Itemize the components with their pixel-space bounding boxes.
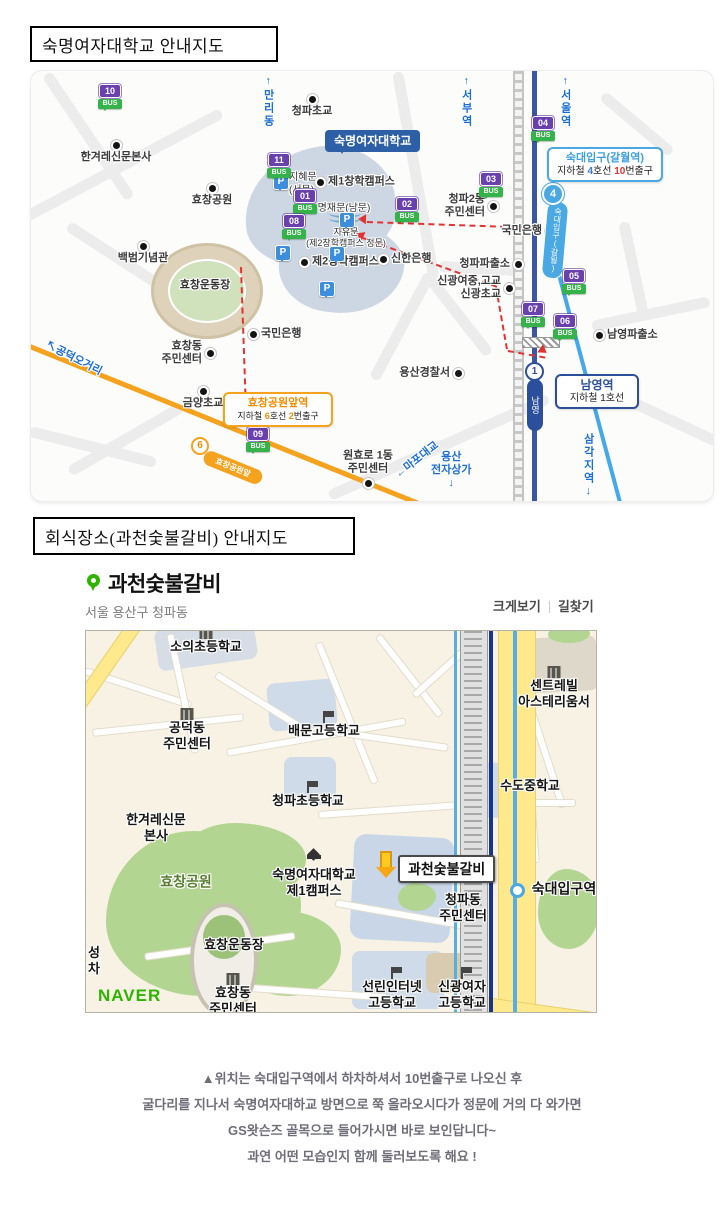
bus-stop-marker: 01BUS bbox=[293, 189, 317, 214]
poi-label: 효창공원 bbox=[192, 194, 232, 207]
bus-icon: BUS bbox=[293, 204, 317, 214]
map2-title: 회식장소(과천숯불갈비) 안내지도 bbox=[45, 524, 288, 549]
poi-label: 청파파출소 bbox=[459, 257, 510, 270]
bus-stop-marker: 06BUS bbox=[553, 314, 577, 339]
university-callout: 숙명여자대학교 bbox=[325, 130, 420, 152]
map2-poi-label: 효창운동장 bbox=[204, 937, 264, 953]
hyochang-callout-line: 지하철 6호선 2번출구 bbox=[230, 410, 326, 423]
map2-poi-label: 소의초등학교 bbox=[170, 639, 242, 655]
bus-number-badge: 10 bbox=[99, 84, 121, 98]
poi-dot bbox=[455, 370, 462, 377]
namyeong-callout-line: 지하철 1호선 bbox=[562, 392, 632, 405]
poi-dot bbox=[380, 256, 387, 263]
parking-icon: P bbox=[339, 212, 355, 228]
sukdae-station-dot bbox=[510, 883, 525, 898]
map2-poi-label: 청파동 주민센터 bbox=[439, 892, 487, 925]
directions-text: ▲위치는 숙대입구역에서 하차하셔서 10번출구로 나오신 후 굴다리를 지나서… bbox=[0, 1066, 724, 1170]
bus-stop-marker: 11BUS bbox=[267, 153, 291, 178]
flag-icon bbox=[461, 967, 463, 979]
building-icon bbox=[181, 708, 194, 720]
map2-poi-label: 공덕동 주민센터 bbox=[163, 720, 211, 753]
map-links: 크게보기 길찾기 bbox=[493, 600, 594, 613]
railway-ties bbox=[464, 631, 482, 1012]
university-guide-map: 숙명여자대학교 4 숙대입구(갈월) 숙대입구(갈월역) 지하철 4호선 10번… bbox=[30, 70, 714, 502]
map1-title: 숙명여자대학교 안내지도 bbox=[42, 32, 224, 57]
poi-label: 신광여중,고교 신광초교 bbox=[437, 275, 501, 301]
poi-label: 효창동 주민센터 bbox=[162, 340, 202, 366]
railway-track bbox=[513, 71, 524, 501]
poi-label: 백범기념관 bbox=[118, 252, 169, 265]
line1-number-badge: 1 bbox=[525, 362, 544, 381]
bus-number-badge: 07 bbox=[522, 302, 544, 316]
restaurant-map-label: 과천숯불갈비 bbox=[398, 855, 495, 883]
directions-line: 굴다리를 지나서 숙명여자대하교 방면으로 쭉 올라오시다가 정문에 거의 다 … bbox=[0, 1092, 724, 1118]
bus-number-badge: 05 bbox=[563, 269, 585, 283]
poi-dot bbox=[200, 388, 207, 395]
line1-station-pill: 남영 bbox=[527, 379, 543, 431]
restaurant-address: 서울 용산구 청파동 bbox=[85, 606, 188, 619]
directions-line: ▲위치는 숙대입구역에서 하차하셔서 10번출구로 나오신 후 bbox=[0, 1066, 724, 1092]
building-icon bbox=[227, 973, 240, 985]
poi-dot bbox=[317, 179, 324, 186]
bus-stop-marker: 08BUS bbox=[282, 214, 306, 239]
bus-stop-marker: 10BUS bbox=[98, 84, 122, 109]
poi-dot bbox=[140, 243, 147, 250]
bus-icon: BUS bbox=[553, 329, 577, 339]
cap-icon bbox=[307, 855, 321, 859]
zoom-link[interactable]: 크게보기 bbox=[493, 600, 541, 613]
poi-label: 한겨레신문본사 bbox=[81, 151, 152, 164]
bus-number-badge: 06 bbox=[554, 314, 576, 328]
directions-line: 과연 어떤 모습인지 함께 둘러보도록 해요 ! bbox=[0, 1144, 724, 1170]
subway-line-blue bbox=[454, 631, 457, 1012]
bus-number-badge: 08 bbox=[283, 214, 305, 228]
line4-number-badge: 4 bbox=[542, 183, 564, 205]
namyeong-callout-title: 남영역 bbox=[562, 378, 632, 392]
line6-number-badge: 6 bbox=[191, 437, 209, 455]
direction-label: 삼각지역↓ bbox=[581, 433, 594, 499]
map2-poi-label: 배문고등학교 bbox=[288, 723, 360, 739]
direction-label: ↑서울역 bbox=[558, 75, 571, 128]
poi-label: 청파초교 bbox=[292, 105, 332, 118]
map2-poi-label: 센트레빌 아스테리움서 bbox=[518, 678, 590, 711]
namyeong-station-callout: 남영역 지하철 1호선 bbox=[555, 374, 639, 409]
naver-logo: NAVER bbox=[98, 987, 161, 1004]
bus-number-badge: 11 bbox=[268, 153, 290, 167]
bus-stop-marker: 03BUS bbox=[479, 172, 503, 197]
poi-label: 용산경찰서 bbox=[399, 366, 450, 379]
bus-number-badge: 03 bbox=[480, 172, 502, 186]
flag-icon bbox=[323, 711, 325, 723]
flag-icon bbox=[307, 781, 309, 793]
bus-icon: BUS bbox=[521, 317, 545, 327]
bus-number-badge: 09 bbox=[247, 427, 269, 441]
map1-title-box: 숙명여자대학교 안내지도 bbox=[30, 26, 278, 62]
direction-label: ↑서부역 bbox=[459, 75, 472, 128]
poi-label: 제2창학캠퍼스 bbox=[312, 255, 379, 268]
restaurant-arrow-icon bbox=[376, 851, 396, 888]
poi-label: 금양초교 bbox=[183, 397, 223, 410]
naver-restaurant-map: 과천숯불갈비 NAVER 소의초등학교공덕동 주민센터배문고등학교청파초등학교한… bbox=[85, 630, 597, 1013]
hyochang-callout-title: 효창공원앞역 bbox=[230, 396, 326, 410]
bus-icon: BUS bbox=[395, 212, 419, 222]
bus-icon: BUS bbox=[246, 442, 270, 452]
line4-center-line bbox=[513, 631, 517, 1012]
building-icon bbox=[200, 630, 213, 639]
map2-poi-label: 성 차 bbox=[88, 945, 100, 978]
bus-icon: BUS bbox=[531, 131, 555, 141]
poi-dot bbox=[113, 142, 120, 149]
sukdae-callout-line: 지하철 4호선 10번출구 bbox=[554, 165, 656, 178]
bus-stop-marker: 05BUS bbox=[562, 269, 586, 294]
map2-poi-label: 효창공원 bbox=[160, 873, 212, 891]
map2-poi-label: 청파초등학교 bbox=[272, 793, 344, 809]
bus-icon: BUS bbox=[562, 284, 586, 294]
map2-poi-label: 신광여자 고등학교 bbox=[438, 979, 486, 1012]
poi-dot bbox=[309, 96, 316, 103]
poi-dot bbox=[365, 480, 372, 487]
parking-icon: P bbox=[319, 281, 335, 297]
bus-stop-marker: 04BUS bbox=[531, 116, 555, 141]
poi-dot bbox=[207, 350, 214, 357]
directions-link[interactable]: 길찾기 bbox=[558, 600, 594, 613]
gate-label: 효창운동장 bbox=[180, 279, 231, 293]
bus-number-badge: 02 bbox=[396, 197, 418, 211]
bus-stop-marker: 09BUS bbox=[246, 427, 270, 452]
map2-poi-label: 한겨레신문 본사 bbox=[126, 812, 186, 845]
main-road bbox=[477, 996, 597, 1013]
bus-number-badge: 01 bbox=[294, 189, 316, 203]
map2-poi-label: 효창동 주민센터 bbox=[209, 985, 257, 1013]
building-icon bbox=[548, 666, 561, 678]
restaurant-name: 과천숯불갈비 bbox=[108, 574, 221, 595]
flag-icon bbox=[391, 967, 393, 979]
sukdae-station-callout: 숙대입구(갈월역) 지하철 4호선 10번출구 bbox=[547, 147, 663, 182]
road bbox=[618, 221, 650, 321]
direction-label: 용산 전자상가 ↓ bbox=[431, 451, 471, 491]
bus-icon: BUS bbox=[479, 187, 503, 197]
parking-icon: P bbox=[275, 245, 291, 261]
poi-label: 신한은행 bbox=[391, 252, 431, 265]
poi-dot bbox=[490, 203, 497, 210]
hyochang-station-callout: 효창공원앞역 지하철 6호선 2번출구 bbox=[223, 392, 333, 427]
poi-label: 남영파출소 bbox=[607, 328, 658, 341]
poi-dot bbox=[250, 331, 257, 338]
map2-poi-label: 숙명여자대학교 제1캠퍼스 bbox=[272, 867, 356, 900]
poi-label: 국민은행 bbox=[261, 327, 301, 340]
direction-label: ↖공덕오거리 bbox=[43, 339, 104, 379]
poi-label: 국민은행 bbox=[502, 224, 542, 237]
parking-icon: P bbox=[329, 246, 345, 262]
bus-number-badge: 04 bbox=[532, 116, 554, 130]
bus-icon: BUS bbox=[282, 229, 306, 239]
poi-dot bbox=[596, 332, 603, 339]
bus-stop-marker: 07BUS bbox=[521, 302, 545, 327]
poi-label: 제1창학캠퍼스 bbox=[328, 175, 395, 188]
poi-dot bbox=[301, 259, 308, 266]
directions-line: GS왓슨즈 골목으로 들어가시면 바로 보인답니다~ bbox=[0, 1118, 724, 1144]
poi-dot bbox=[506, 285, 513, 292]
link-divider bbox=[549, 601, 550, 613]
bus-icon: BUS bbox=[267, 168, 291, 178]
rail-line-navy bbox=[489, 631, 493, 1012]
poi-dot bbox=[515, 261, 522, 268]
map2-poi-label: 선린인터넷 고등학교 bbox=[362, 979, 422, 1012]
road bbox=[30, 108, 224, 226]
bus-icon: BUS bbox=[98, 99, 122, 109]
page: 숙명여자대학교 안내지도 bbox=[0, 0, 724, 1211]
map2-title-box: 회식장소(과천숯불갈비) 안내지도 bbox=[33, 517, 355, 555]
map2-poi-label: 숙대입구역 bbox=[532, 880, 596, 898]
map-pin-icon bbox=[87, 574, 100, 587]
bus-stop-marker: 02BUS bbox=[395, 197, 419, 222]
direction-label: ↑만리동 bbox=[261, 75, 274, 128]
map2-poi-label: 수도중학교 bbox=[500, 778, 560, 794]
poi-dot bbox=[209, 185, 216, 192]
road bbox=[591, 296, 711, 332]
sukdae-callout-title: 숙대입구(갈월역) bbox=[554, 151, 656, 165]
university-callout-label: 숙명여자대학교 bbox=[334, 134, 411, 148]
line4-station-pill: 숙대입구(갈월) bbox=[541, 200, 570, 280]
poi-label: 원효로 1동 주민센터 bbox=[343, 450, 393, 476]
